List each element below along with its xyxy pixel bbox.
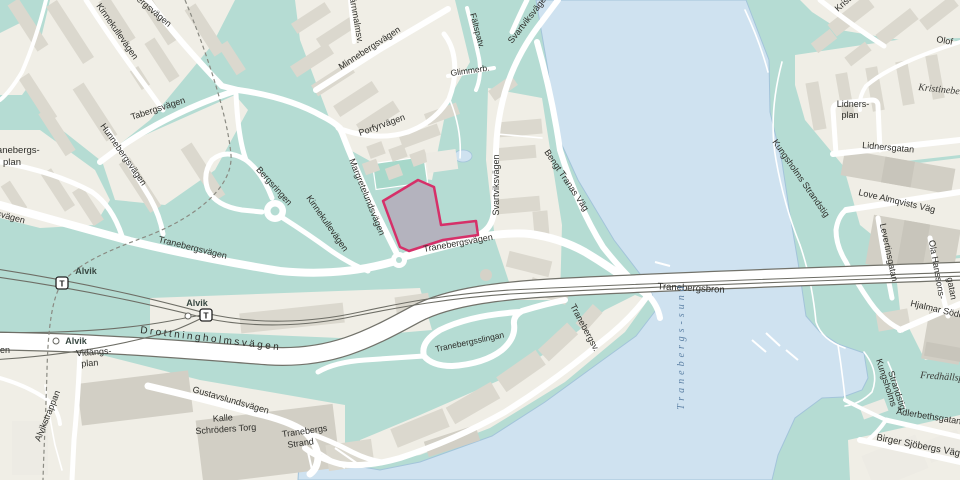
map-canvas[interactable]: T T Mössebergsvägen Kinnekullevägen Tabe…	[0, 0, 960, 480]
label-tranebergsplan-1: Tranebergs-	[0, 145, 40, 156]
label-alvik-3: Alvik	[65, 336, 88, 346]
map-view[interactable]: T T Mössebergsvägen Kinnekullevägen Tabe…	[0, 0, 960, 480]
label-en-fragment: en	[0, 345, 10, 355]
label-alvik-1: Alvik	[75, 266, 98, 276]
tbana-icon-letter: T	[203, 311, 209, 321]
metro-station-alvik-2: T	[200, 309, 212, 321]
label-vidangsplan-2: plan	[81, 357, 99, 368]
label-tranebergsplan-2: plan	[3, 157, 21, 168]
label-lidnersplan-2: plan	[841, 110, 858, 120]
building	[881, 157, 915, 188]
label-tranebergs-sund: Tranebergs-sund	[676, 282, 687, 409]
building	[426, 149, 458, 173]
label-alvik-2: Alvik	[186, 298, 209, 308]
label-kalle-schroders-1: Kalle	[212, 412, 233, 423]
metro-station-alvik-1: T	[56, 277, 68, 289]
label-lidnersplan-1: Lidners-	[837, 99, 870, 109]
label-svartviksvagen-mid: Svartviksvägen	[491, 154, 501, 215]
tbana-icon-letter: T	[59, 279, 65, 289]
